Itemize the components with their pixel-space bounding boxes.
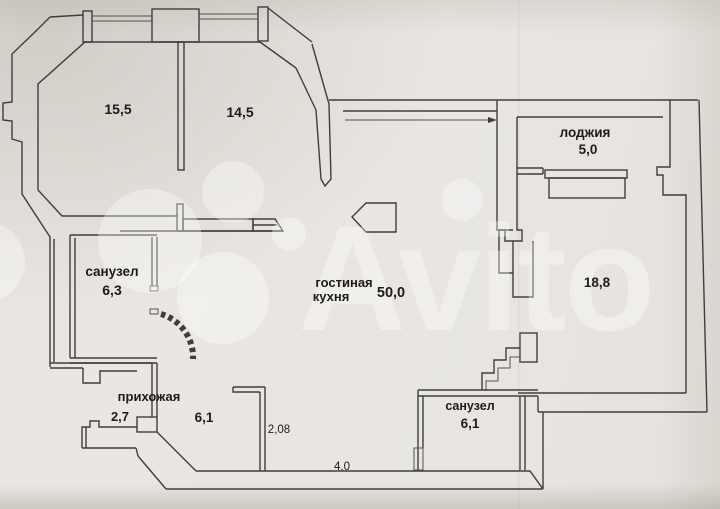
area-room-15-5: 15,5 <box>104 101 131 117</box>
area-living-kitchen: 50,0 <box>377 285 405 301</box>
area-hallway: 2,7 <box>111 409 129 424</box>
area-bathroom-upper: 6,3 <box>102 282 122 298</box>
area-room-18-8: 18,8 <box>584 275 611 290</box>
watermark-logo-circle <box>177 252 269 344</box>
central-top-wall <box>329 100 698 123</box>
area-hall-zone: 6,1 <box>195 410 214 425</box>
hallway-walls <box>50 363 265 489</box>
label-loggia: лоджия <box>560 125 611 140</box>
floorplan-photo: Avito 15,5 14,5 лоджия 5,0 санузел 6,3 г… <box>0 0 720 509</box>
dimension-bottom: 4,0 <box>334 461 350 473</box>
area-room-14-5: 14,5 <box>226 104 253 120</box>
apartment-outline <box>3 7 331 367</box>
floor-plan-drawing: Avito 15,5 14,5 лоджия 5,0 санузел 6,3 г… <box>0 0 720 509</box>
label-bathroom-upper: санузел <box>85 264 138 279</box>
bottom-walls <box>166 412 543 489</box>
label-bathroom-lower: санузел <box>445 399 494 413</box>
area-loggia: 5,0 <box>579 142 598 157</box>
dimension-wall: 2,08 <box>268 424 290 436</box>
watermark-logo-circle <box>202 161 264 223</box>
label-living-kitchen-1: гостиная <box>315 275 372 290</box>
label-living-kitchen-2: кухня <box>313 289 350 304</box>
watermark-logo-circle <box>0 222 25 302</box>
avito-watermark: Avito <box>0 161 652 362</box>
label-hallway: прихожая <box>118 389 181 404</box>
area-bathroom-lower: 6,1 <box>461 416 480 431</box>
